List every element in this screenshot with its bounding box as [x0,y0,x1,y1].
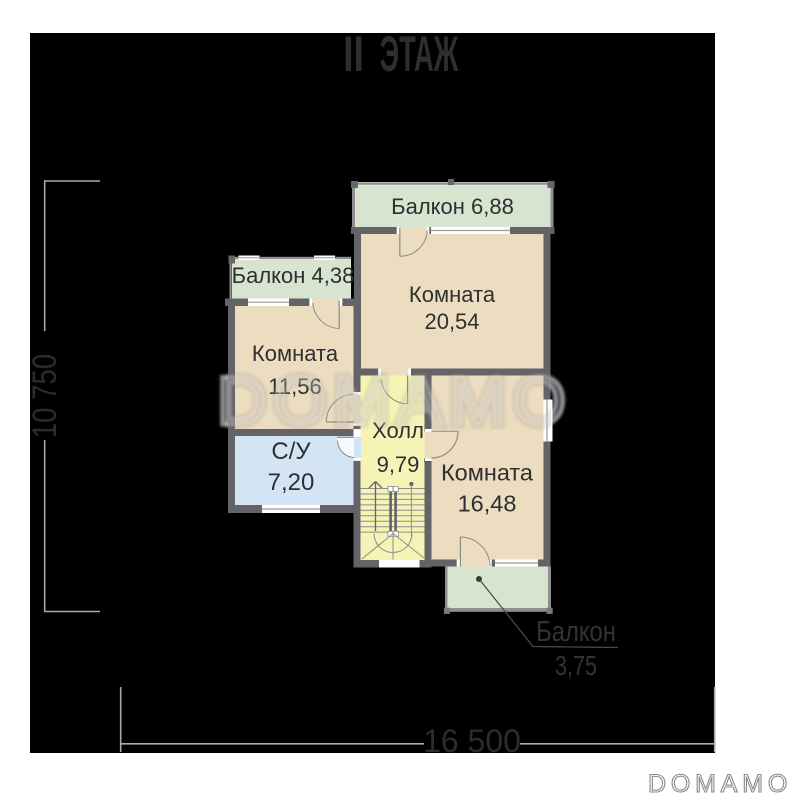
svg-text:7,20: 7,20 [268,469,315,496]
svg-text:Балкон: Балкон [536,615,616,648]
svg-text:DOMAMO: DOMAMO [217,363,573,439]
svg-text:16 500: 16 500 [423,723,521,759]
svg-text:Комната: Комната [409,282,496,307]
svg-text:Балкон 4,38: Балкон 4,38 [232,263,355,288]
svg-text:DOMAMO: DOMAMO [648,770,792,798]
svg-text:3,75: 3,75 [555,650,597,681]
svg-text:II: II [343,27,364,82]
svg-text:10 750: 10 750 [25,354,64,438]
svg-text:С/У: С/У [271,438,311,465]
svg-text:20,54: 20,54 [424,309,479,334]
svg-text:Балкон 6,88: Балкон 6,88 [391,194,514,219]
svg-text:16,48: 16,48 [458,491,517,517]
svg-text:9,79: 9,79 [377,452,420,477]
svg-text:ЭТАЖ: ЭТАЖ [380,26,459,82]
svg-text:Комната: Комната [441,460,534,486]
